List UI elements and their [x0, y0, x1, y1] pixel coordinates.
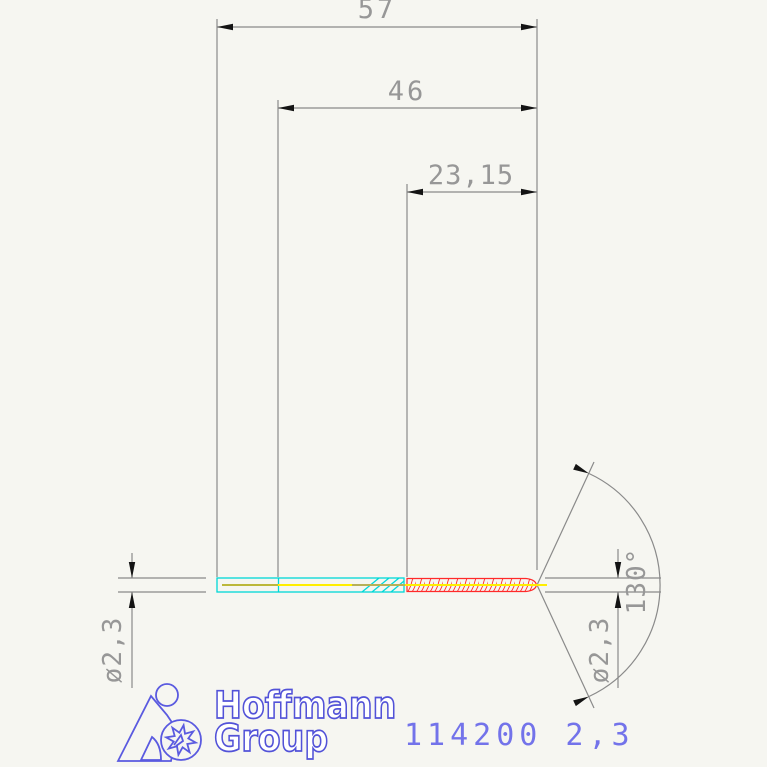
arrow-57-right — [521, 24, 537, 30]
hoffmann-figure-star-icon — [115, 680, 225, 767]
arrow-shank-dia-bottom — [129, 592, 135, 608]
arrow-57-left — [217, 24, 233, 30]
arrow-46-right — [521, 105, 537, 111]
dimension-arrows — [129, 24, 621, 706]
arrow-shank-dia-top — [129, 562, 135, 578]
arrow-23-15-right — [521, 189, 537, 195]
dim-text-point-angle: 130° — [624, 531, 650, 631]
part-number: 114200 2,3 — [404, 719, 635, 753]
dimension-lines — [118, 19, 661, 708]
logo-head-circle — [156, 684, 178, 706]
dim-text-flute-length: 23,15 — [411, 163, 531, 189]
point-angle-ray-upper — [538, 462, 595, 584]
dim-text-overall-length: 57 — [317, 0, 437, 23]
arrow-46-left — [278, 105, 294, 111]
logo-inner-arch — [141, 737, 161, 760]
dim-text-tip-diameter: ø2,3 — [587, 595, 613, 705]
brand-wordmark: Hoffmann Group — [214, 689, 396, 755]
dim-text-length-to-neck: 46 — [347, 79, 467, 105]
technical-drawing-canvas: 57 46 23,15 ø2,3 ø2,3 130° Hoffmann Grou… — [0, 0, 767, 767]
arrow-23-15-left — [407, 189, 423, 195]
arrow-tip-dia-top — [615, 562, 621, 578]
logo-star-circle — [161, 720, 201, 760]
arrow-tip-dia-bottom — [615, 592, 621, 608]
